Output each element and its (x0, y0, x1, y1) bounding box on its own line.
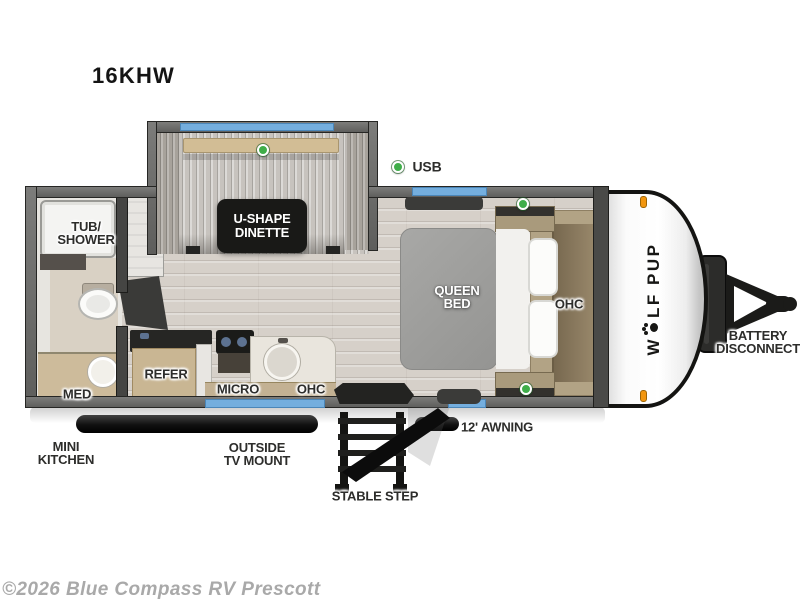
toilet-bowl (86, 295, 110, 313)
usb-indicator-bed-top (517, 198, 529, 210)
floorplan-canvas: 16KHW U-SHAPE DINETTE (0, 0, 800, 600)
bed-bedding (496, 229, 530, 369)
bathroom-sink (88, 357, 118, 387)
mini-kitchen-line2: KITCHEN (38, 453, 94, 466)
dinette-foot-right (326, 246, 340, 254)
mini-kitchen-label: MINI KITCHEN (38, 440, 94, 466)
usb-legend-label: USB (413, 161, 442, 174)
micro-label: MICRO (217, 383, 259, 396)
outside-kitchen-bar (76, 415, 318, 433)
stable-step-label: STABLE STEP (332, 490, 418, 503)
refer-label: REFER (144, 368, 187, 381)
counter-item (140, 333, 149, 339)
wall-top-left (25, 186, 157, 198)
burner (237, 337, 247, 347)
pillow (528, 300, 558, 358)
bedroom-ohc-label: OHC (555, 298, 583, 311)
usb-indicator-bed-bottom (520, 383, 532, 395)
tub-ledge (40, 254, 86, 270)
dinette-foot-left (186, 246, 200, 254)
queen-bed-label: QUEEN BED (434, 284, 479, 310)
faucet (278, 338, 288, 343)
battery-disconnect-label: BATTERY DISCONNECT (716, 329, 800, 355)
bathroom-wall-lower (116, 326, 128, 398)
queen-bed-line2: BED (434, 297, 479, 310)
med-label: MED (63, 388, 91, 401)
wolf-pup-logo: W LF PUP (643, 219, 665, 379)
toilet (78, 288, 118, 320)
dinette-seat-right (345, 132, 369, 250)
outside-tv-line2: TV MOUNT (224, 454, 290, 467)
dinette-seat-left (155, 132, 179, 254)
wall-left (25, 186, 37, 408)
battery-line2: DISCONNECT (716, 342, 800, 355)
burner (221, 337, 231, 347)
bedroom-storage-top (405, 197, 483, 210)
awning-label: 12' AWNING (461, 421, 533, 434)
watermark: ©2026 Blue Compass RV Prescott (2, 579, 321, 600)
slideout-window (180, 123, 334, 131)
usb-indicator-dinette (257, 144, 269, 156)
paw-icon (650, 323, 658, 332)
entry-step-mat (334, 383, 414, 404)
cooktop-cabinet (218, 353, 252, 373)
tub-shower-label: TUB/ SHOWER (57, 220, 114, 246)
marker-light-icon (640, 196, 647, 208)
tub-shower-line2: SHOWER (57, 233, 114, 246)
dinette-label-line2: DINETTE (235, 226, 289, 240)
kitchen-sink (264, 344, 300, 380)
stable-step (330, 394, 454, 498)
outside-tv-label: OUTSIDE TV MOUNT (224, 441, 290, 467)
bed-bench (437, 389, 481, 404)
body-end-wall (593, 186, 609, 408)
dinette-label-line1: U-SHAPE (233, 212, 290, 226)
logo-text-pre: W (644, 337, 664, 356)
model-title: 16KHW (92, 63, 175, 89)
usb-legend-dot (392, 161, 404, 173)
logo-text-post: LF PUP (644, 243, 664, 318)
dinette-label: U-SHAPE DINETTE (217, 199, 307, 253)
pillow (528, 238, 558, 296)
cooktop (216, 330, 254, 354)
bedroom-window-top (412, 187, 487, 196)
kitchen-window-bottom (205, 399, 325, 408)
marker-light-icon (640, 390, 647, 402)
wall-top-right (368, 186, 609, 198)
kitchen-ohc-label: OHC (297, 383, 325, 396)
bathroom-wall-upper (116, 197, 128, 293)
